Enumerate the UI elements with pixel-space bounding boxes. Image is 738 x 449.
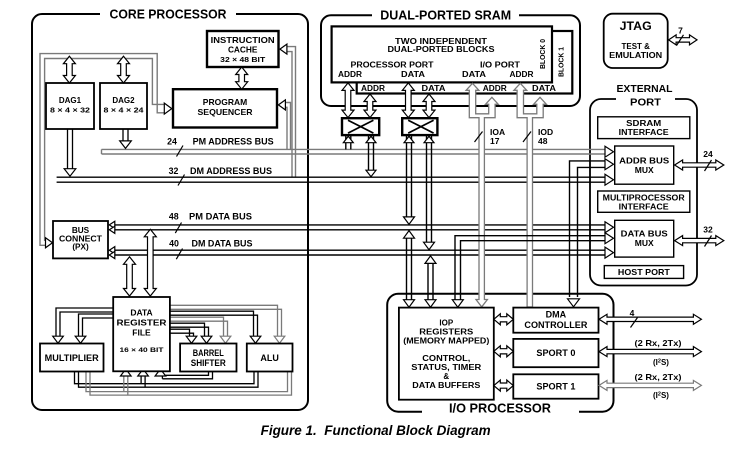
svg-text:PROCESSOR PORT: PROCESSOR PORT xyxy=(351,61,434,70)
svg-text:SEQUENCER: SEQUENCER xyxy=(198,107,253,117)
svg-text:DM ADDRESS BUS: DM ADDRESS BUS xyxy=(190,166,272,176)
svg-text:REGISTERS: REGISTERS xyxy=(419,328,474,337)
svg-text:DAG2: DAG2 xyxy=(112,96,135,105)
svg-text:32: 32 xyxy=(703,225,713,235)
svg-text:REGISTER: REGISTER xyxy=(117,318,167,328)
svg-text:PM ADDRESS BUS: PM ADDRESS BUS xyxy=(193,136,274,146)
svg-text:DMA: DMA xyxy=(546,310,567,320)
svg-text:SHIFTER: SHIFTER xyxy=(191,358,226,368)
svg-text:DAG1: DAG1 xyxy=(59,96,82,105)
svg-text:4: 4 xyxy=(630,308,635,318)
svg-text:PM DATA BUS: PM DATA BUS xyxy=(189,211,252,221)
svg-text:IOP: IOP xyxy=(439,319,453,328)
svg-text:MULTIPROCESSOR: MULTIPROCESSOR xyxy=(603,193,685,202)
svg-text:SDRAM: SDRAM xyxy=(626,119,661,128)
svg-text:(PX): (PX) xyxy=(72,243,89,252)
svg-text:DATA: DATA xyxy=(130,308,152,318)
svg-text:8 × 4 × 24: 8 × 4 × 24 xyxy=(104,108,144,115)
svg-text:DUAL-PORTED BLOCKS: DUAL-PORTED BLOCKS xyxy=(388,45,496,54)
svg-text:7: 7 xyxy=(678,26,683,36)
svg-text:ADDR: ADDR xyxy=(510,70,534,79)
svg-text:CORE PROCESSOR: CORE PROCESSOR xyxy=(110,8,227,22)
svg-text:JTAG: JTAG xyxy=(620,21,652,33)
svg-text:CONTROL,: CONTROL, xyxy=(422,354,470,363)
svg-text:PROGRAM: PROGRAM xyxy=(203,97,247,107)
svg-text:DM DATA BUS: DM DATA BUS xyxy=(192,239,253,249)
svg-text:I/O PROCESSOR: I/O PROCESSOR xyxy=(449,402,551,416)
svg-text:I/O PORT: I/O PORT xyxy=(480,61,520,70)
svg-text:STATUS, TIMER: STATUS, TIMER xyxy=(411,363,481,372)
svg-text:ALU: ALU xyxy=(260,353,279,363)
svg-text:48: 48 xyxy=(538,136,548,146)
svg-text:MUX: MUX xyxy=(635,165,654,175)
svg-text:TEST &: TEST & xyxy=(621,42,650,51)
svg-text:Figure 1. Functional Block Di: Figure 1. Functional Block Diagram xyxy=(261,423,491,438)
svg-text:MULTIPLIER: MULTIPLIER xyxy=(45,353,100,363)
svg-text:40: 40 xyxy=(169,239,179,249)
svg-text:24: 24 xyxy=(167,136,177,146)
svg-text:CONTROLLER: CONTROLLER xyxy=(524,320,587,330)
svg-text:ADDR: ADDR xyxy=(483,84,507,93)
svg-text:DATA: DATA xyxy=(532,84,556,93)
svg-text:SPORT 1: SPORT 1 xyxy=(536,382,575,392)
svg-text:(I2S): (I2S) xyxy=(653,358,669,367)
svg-text:ADDR BUS: ADDR BUS xyxy=(619,156,669,166)
svg-text:16 × 40 BIT: 16 × 40 BIT xyxy=(120,347,165,354)
svg-text:EMULATION: EMULATION xyxy=(609,51,662,60)
svg-text:DATA: DATA xyxy=(422,84,446,93)
svg-text:17: 17 xyxy=(490,136,500,146)
svg-text:48: 48 xyxy=(169,211,179,221)
svg-text:BLOCK 0: BLOCK 0 xyxy=(538,39,547,69)
svg-text:FILE: FILE xyxy=(132,328,151,338)
svg-text:&: & xyxy=(443,372,449,381)
svg-text:8 × 4 × 32: 8 × 4 × 32 xyxy=(50,108,90,115)
svg-text:DATA BUS: DATA BUS xyxy=(621,229,668,239)
svg-text:INTERFACE: INTERFACE xyxy=(619,128,670,137)
svg-text:EXTERNAL: EXTERNAL xyxy=(617,84,673,95)
svg-text:HOST PORT: HOST PORT xyxy=(618,267,671,277)
svg-text:(2 Rx, 2Tx): (2 Rx, 2Tx) xyxy=(635,373,682,382)
svg-text:CACHE: CACHE xyxy=(228,45,258,55)
svg-text:SPORT 0: SPORT 0 xyxy=(536,348,575,358)
svg-text:BLOCK 1: BLOCK 1 xyxy=(557,47,566,77)
svg-text:(MEMORY MAPPED): (MEMORY MAPPED) xyxy=(403,337,489,346)
svg-text:DUAL-PORTED SRAM: DUAL-PORTED SRAM xyxy=(380,9,511,23)
svg-text:(I2S): (I2S) xyxy=(653,391,669,400)
svg-text:DATA BUFFERS: DATA BUFFERS xyxy=(412,381,481,390)
svg-text:ADDR: ADDR xyxy=(361,84,385,93)
svg-text:INTERFACE: INTERFACE xyxy=(619,202,670,211)
svg-text:BARREL: BARREL xyxy=(193,348,224,358)
svg-text:ADDR: ADDR xyxy=(338,70,362,79)
svg-text:PORT: PORT xyxy=(630,98,661,109)
svg-text:INSTRUCTION: INSTRUCTION xyxy=(211,35,275,45)
svg-text:32 × 48 BIT: 32 × 48 BIT xyxy=(220,57,266,64)
svg-text:MUX: MUX xyxy=(635,238,654,248)
svg-text:32: 32 xyxy=(169,166,179,176)
svg-text:24: 24 xyxy=(703,149,713,159)
svg-text:(2 Rx, 2Tx): (2 Rx, 2Tx) xyxy=(635,339,682,348)
svg-text:DATA: DATA xyxy=(401,70,425,79)
svg-text:DATA: DATA xyxy=(462,70,486,79)
